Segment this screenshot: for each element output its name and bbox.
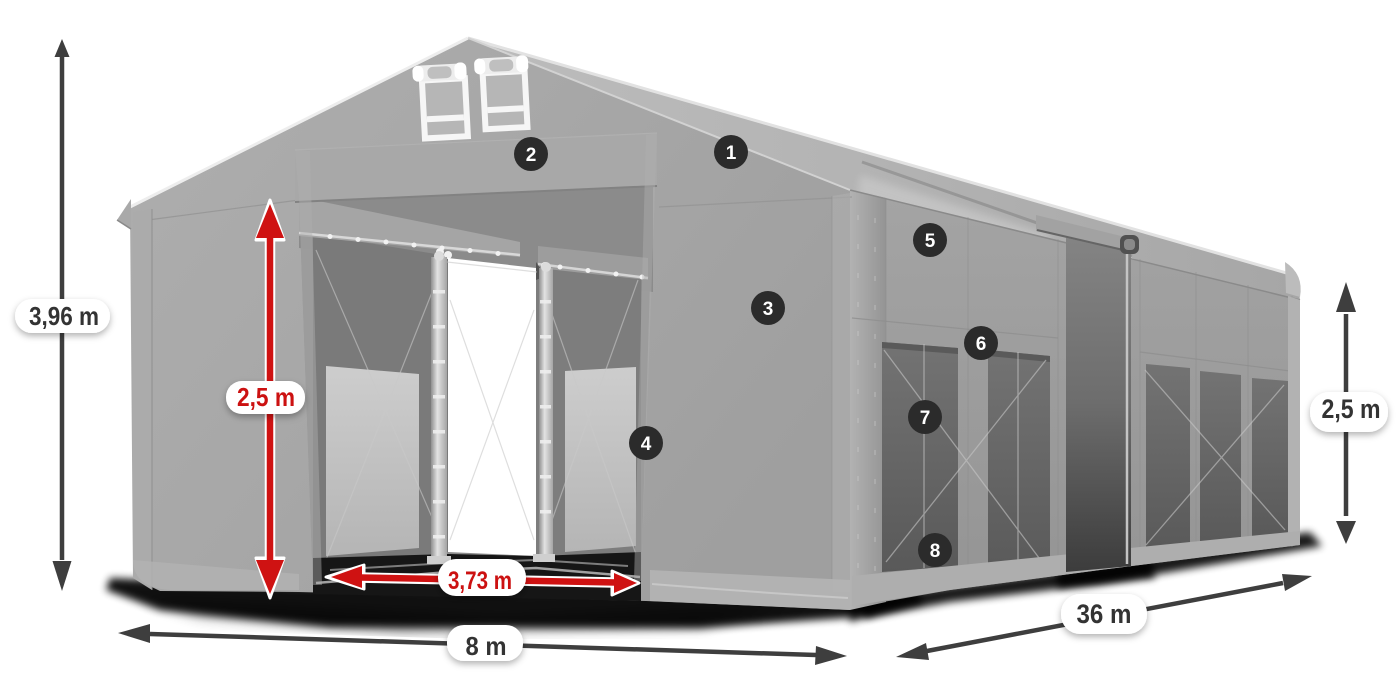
svg-text:1: 1 — [726, 143, 737, 164]
svg-text:5: 5 — [925, 231, 936, 252]
svg-text:3,73 m: 3,73 m — [448, 567, 512, 595]
svg-text:4: 4 — [641, 434, 652, 455]
svg-text:36 m: 36 m — [1077, 599, 1132, 629]
svg-text:3,96 m: 3,96 m — [29, 301, 99, 331]
svg-text:8 m: 8 m — [466, 631, 507, 661]
svg-text:8: 8 — [930, 541, 941, 562]
svg-text:2: 2 — [526, 145, 537, 166]
svg-text:3: 3 — [763, 299, 774, 320]
svg-text:7: 7 — [920, 408, 931, 429]
svg-text:6: 6 — [976, 334, 987, 355]
svg-text:2,5 m: 2,5 m — [237, 382, 295, 412]
svg-text:2,5 m: 2,5 m — [1322, 394, 1381, 424]
